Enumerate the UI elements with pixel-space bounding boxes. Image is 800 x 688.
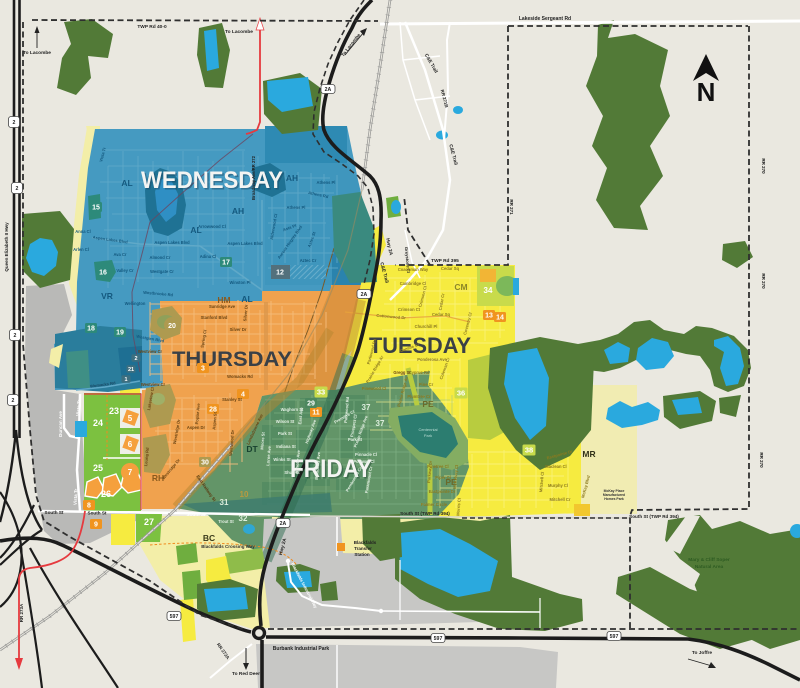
svg-text:Arlen Cl: Arlen Cl: [73, 247, 89, 252]
svg-text:Almond Cr: Almond Cr: [150, 255, 171, 260]
svg-text:Athens Pl: Athens Pl: [317, 180, 336, 185]
svg-text:2A: 2A: [361, 292, 368, 298]
svg-text:Trout St: Trout St: [218, 519, 234, 524]
svg-text:20: 20: [168, 323, 176, 330]
svg-text:AL: AL: [241, 294, 252, 304]
svg-text:Maclean Cl: Maclean Cl: [545, 464, 566, 469]
svg-text:18: 18: [87, 326, 95, 333]
svg-text:15: 15: [92, 205, 100, 212]
svg-text:TWP Rd 40-0: TWP Rd 40-0: [137, 24, 167, 30]
svg-text:South St (TWP Rd 394): South St (TWP Rd 394): [400, 511, 450, 516]
svg-text:33: 33: [317, 388, 325, 397]
svg-text:Burbank Industrial Park: Burbank Industrial Park: [273, 646, 330, 652]
svg-text:2: 2: [13, 120, 16, 126]
svg-text:5: 5: [128, 414, 133, 423]
svg-text:RR 270: RR 270: [761, 273, 766, 289]
svg-text:RR 270: RR 270: [759, 452, 764, 468]
svg-text:AL: AL: [121, 178, 132, 188]
svg-text:26: 26: [101, 489, 111, 499]
svg-text:Park St: Park St: [278, 431, 293, 436]
svg-text:MR: MR: [582, 449, 595, 459]
svg-text:38: 38: [525, 446, 533, 455]
svg-text:8: 8: [87, 503, 91, 510]
svg-text:32: 32: [239, 514, 248, 523]
svg-text:12: 12: [276, 270, 284, 277]
svg-text:24: 24: [93, 418, 103, 428]
svg-text:Palmer Circle: Palmer Circle: [421, 502, 448, 507]
svg-text:RR 270: RR 270: [761, 158, 766, 174]
svg-text:Portway Cl: Portway Cl: [353, 459, 374, 464]
svg-text:Sunridge Ave: Sunridge Ave: [209, 304, 236, 309]
svg-text:3: 3: [201, 366, 205, 373]
svg-text:Wilson St: Wilson St: [276, 419, 295, 424]
svg-text:9: 9: [94, 522, 98, 529]
svg-text:Cedar Sq: Cedar Sq: [432, 312, 450, 317]
svg-text:Blackfalds: Blackfalds: [354, 540, 377, 545]
svg-text:RR 273A: RR 273A: [19, 603, 24, 622]
svg-text:21: 21: [128, 367, 134, 373]
svg-text:Murphy Cl: Murphy Cl: [548, 483, 568, 488]
svg-text:To Joffre: To Joffre: [692, 650, 712, 656]
svg-text:Transfer: Transfer: [354, 546, 372, 551]
svg-text:Natural Area: Natural Area: [695, 564, 724, 570]
svg-text:Adina Cl: Adina Cl: [200, 254, 217, 259]
svg-text:Pinnacle Cl: Pinnacle Cl: [355, 452, 377, 457]
svg-text:Valley Cr: Valley Cr: [116, 268, 134, 273]
svg-text:Aspen Dr: Aspen Dr: [187, 425, 206, 430]
svg-text:2: 2: [134, 356, 137, 362]
svg-text:Indiana St: Indiana St: [276, 444, 296, 449]
svg-text:Homes Park: Homes Park: [604, 497, 624, 501]
svg-text:Arrowwood Cl: Arrowwood Cl: [198, 224, 226, 229]
svg-text:THURSDAY: THURSDAY: [172, 348, 292, 371]
svg-text:13: 13: [485, 313, 493, 320]
svg-text:25: 25: [93, 463, 103, 473]
svg-text:7: 7: [128, 468, 133, 477]
svg-text:Pinewood Cl: Pinewood Cl: [362, 386, 387, 391]
svg-text:Park: Park: [424, 433, 432, 438]
svg-text:South St: South St: [187, 512, 206, 517]
svg-text:Cyprus Rd: Cyprus Rd: [409, 370, 430, 375]
svg-text:AH: AH: [232, 206, 244, 216]
svg-text:Anna Cl: Anna Cl: [75, 229, 90, 234]
svg-text:Cedar Sq: Cedar Sq: [441, 266, 459, 271]
svg-text:Winston Pl: Winston Pl: [229, 280, 250, 285]
svg-text:Coachman Way: Coachman Way: [398, 267, 429, 272]
svg-text:Aztec Cr: Aztec Cr: [300, 258, 317, 263]
svg-text:23: 23: [109, 406, 119, 416]
svg-text:Plumtree Cr: Plumtree Cr: [407, 394, 431, 399]
svg-text:To Lacombe: To Lacombe: [23, 50, 51, 56]
svg-text:Eastpointe Dr: Eastpointe Dr: [429, 489, 456, 494]
svg-text:29: 29: [307, 401, 315, 408]
svg-text:To Red Deer: To Red Deer: [232, 671, 260, 677]
svg-text:34: 34: [484, 286, 493, 295]
svg-text:27: 27: [144, 517, 154, 527]
svg-text:Athens Pl: Athens Pl: [287, 205, 306, 210]
svg-text:1: 1: [124, 377, 127, 383]
svg-text:South St (TWP Rd 394): South St (TWP Rd 394): [629, 514, 679, 519]
svg-text:Westview Cr: Westview Cr: [138, 349, 163, 354]
svg-text:2: 2: [16, 186, 19, 192]
svg-text:BC: BC: [203, 533, 215, 543]
svg-text:Pine Cr: Pine Cr: [419, 382, 434, 387]
svg-text:597: 597: [170, 614, 179, 620]
svg-text:19: 19: [116, 330, 124, 337]
svg-text:2: 2: [14, 333, 17, 339]
svg-text:TUESDAY: TUESDAY: [369, 333, 471, 358]
svg-text:Shull St: Shull St: [284, 470, 300, 475]
svg-text:31: 31: [220, 498, 229, 507]
svg-text:Churchill Pl: Churchill Pl: [415, 324, 438, 329]
svg-text:Ponderosa Ave: Ponderosa Ave: [417, 357, 447, 362]
svg-text:Centennial: Centennial: [418, 427, 437, 432]
svg-text:Mary & Cliff Soper: Mary & Cliff Soper: [688, 557, 730, 563]
svg-text:RR 271: RR 271: [509, 199, 514, 215]
svg-text:Blackfalds Crossing Way: Blackfalds Crossing Way: [201, 544, 255, 549]
svg-text:Aspen Lakes Blvd: Aspen Lakes Blvd: [154, 240, 190, 245]
svg-text:16: 16: [99, 270, 107, 277]
svg-text:Winks St: Winks St: [273, 457, 291, 462]
svg-text:Crimson Ct: Crimson Ct: [398, 307, 421, 312]
svg-text:PE: PE: [422, 399, 434, 409]
svg-text:14: 14: [496, 315, 504, 322]
svg-text:Silver Dr: Silver Dr: [230, 327, 247, 332]
svg-text:Vista Tr: Vista Tr: [73, 488, 79, 505]
svg-text:South St: South St: [88, 511, 107, 516]
svg-text:Lakeside Sergeant Rd: Lakeside Sergeant Rd: [519, 16, 571, 22]
svg-text:Station: Station: [354, 552, 370, 557]
svg-text:Piper Cl: Piper Cl: [435, 475, 450, 480]
svg-text:Westgate Cr: Westgate Cr: [150, 269, 174, 274]
svg-text:Westview Cr: Westview Cr: [141, 382, 166, 387]
svg-text:South St: South St: [45, 510, 64, 515]
svg-text:WEDNESDAY: WEDNESDAY: [141, 167, 283, 194]
svg-text:CM: CM: [454, 282, 467, 292]
svg-text:VR: VR: [101, 291, 113, 301]
svg-text:Queen Elizabeth II Hwy: Queen Elizabeth II Hwy: [4, 222, 9, 272]
svg-text:Aspen Lakes Blvd: Aspen Lakes Blvd: [227, 241, 263, 246]
svg-text:Duncan Ave: Duncan Ave: [58, 411, 63, 437]
svg-text:Mitchell Cr: Mitchell Cr: [550, 497, 571, 502]
svg-text:2: 2: [12, 398, 15, 404]
svg-text:Stanford Blvd: Stanford Blvd: [201, 315, 228, 320]
svg-text:TWP Rd 395: TWP Rd 395: [431, 258, 459, 264]
svg-text:36: 36: [457, 389, 465, 398]
svg-text:Wellington: Wellington: [125, 301, 146, 306]
svg-text:Womacks Rd: Womacks Rd: [227, 374, 253, 379]
svg-text:AH: AH: [286, 173, 298, 183]
svg-text:Broadway Ave/RR 272: Broadway Ave/RR 272: [251, 155, 256, 200]
svg-text:2A: 2A: [280, 521, 287, 527]
svg-text:To Lacombe: To Lacombe: [225, 29, 253, 35]
svg-text:597: 597: [434, 636, 443, 642]
svg-text:Ava Cr: Ava Cr: [113, 252, 126, 257]
svg-text:2A: 2A: [325, 87, 332, 93]
svg-text:Stanley St: Stanley St: [222, 397, 242, 402]
svg-text:37: 37: [362, 403, 371, 412]
svg-text:37: 37: [376, 419, 385, 428]
svg-text:11: 11: [312, 410, 320, 417]
svg-text:597: 597: [610, 634, 619, 640]
svg-text:10: 10: [240, 490, 249, 499]
svg-text:6: 6: [128, 440, 133, 449]
svg-text:N: N: [697, 77, 716, 107]
svg-text:17: 17: [222, 260, 230, 267]
svg-text:30: 30: [201, 460, 209, 467]
